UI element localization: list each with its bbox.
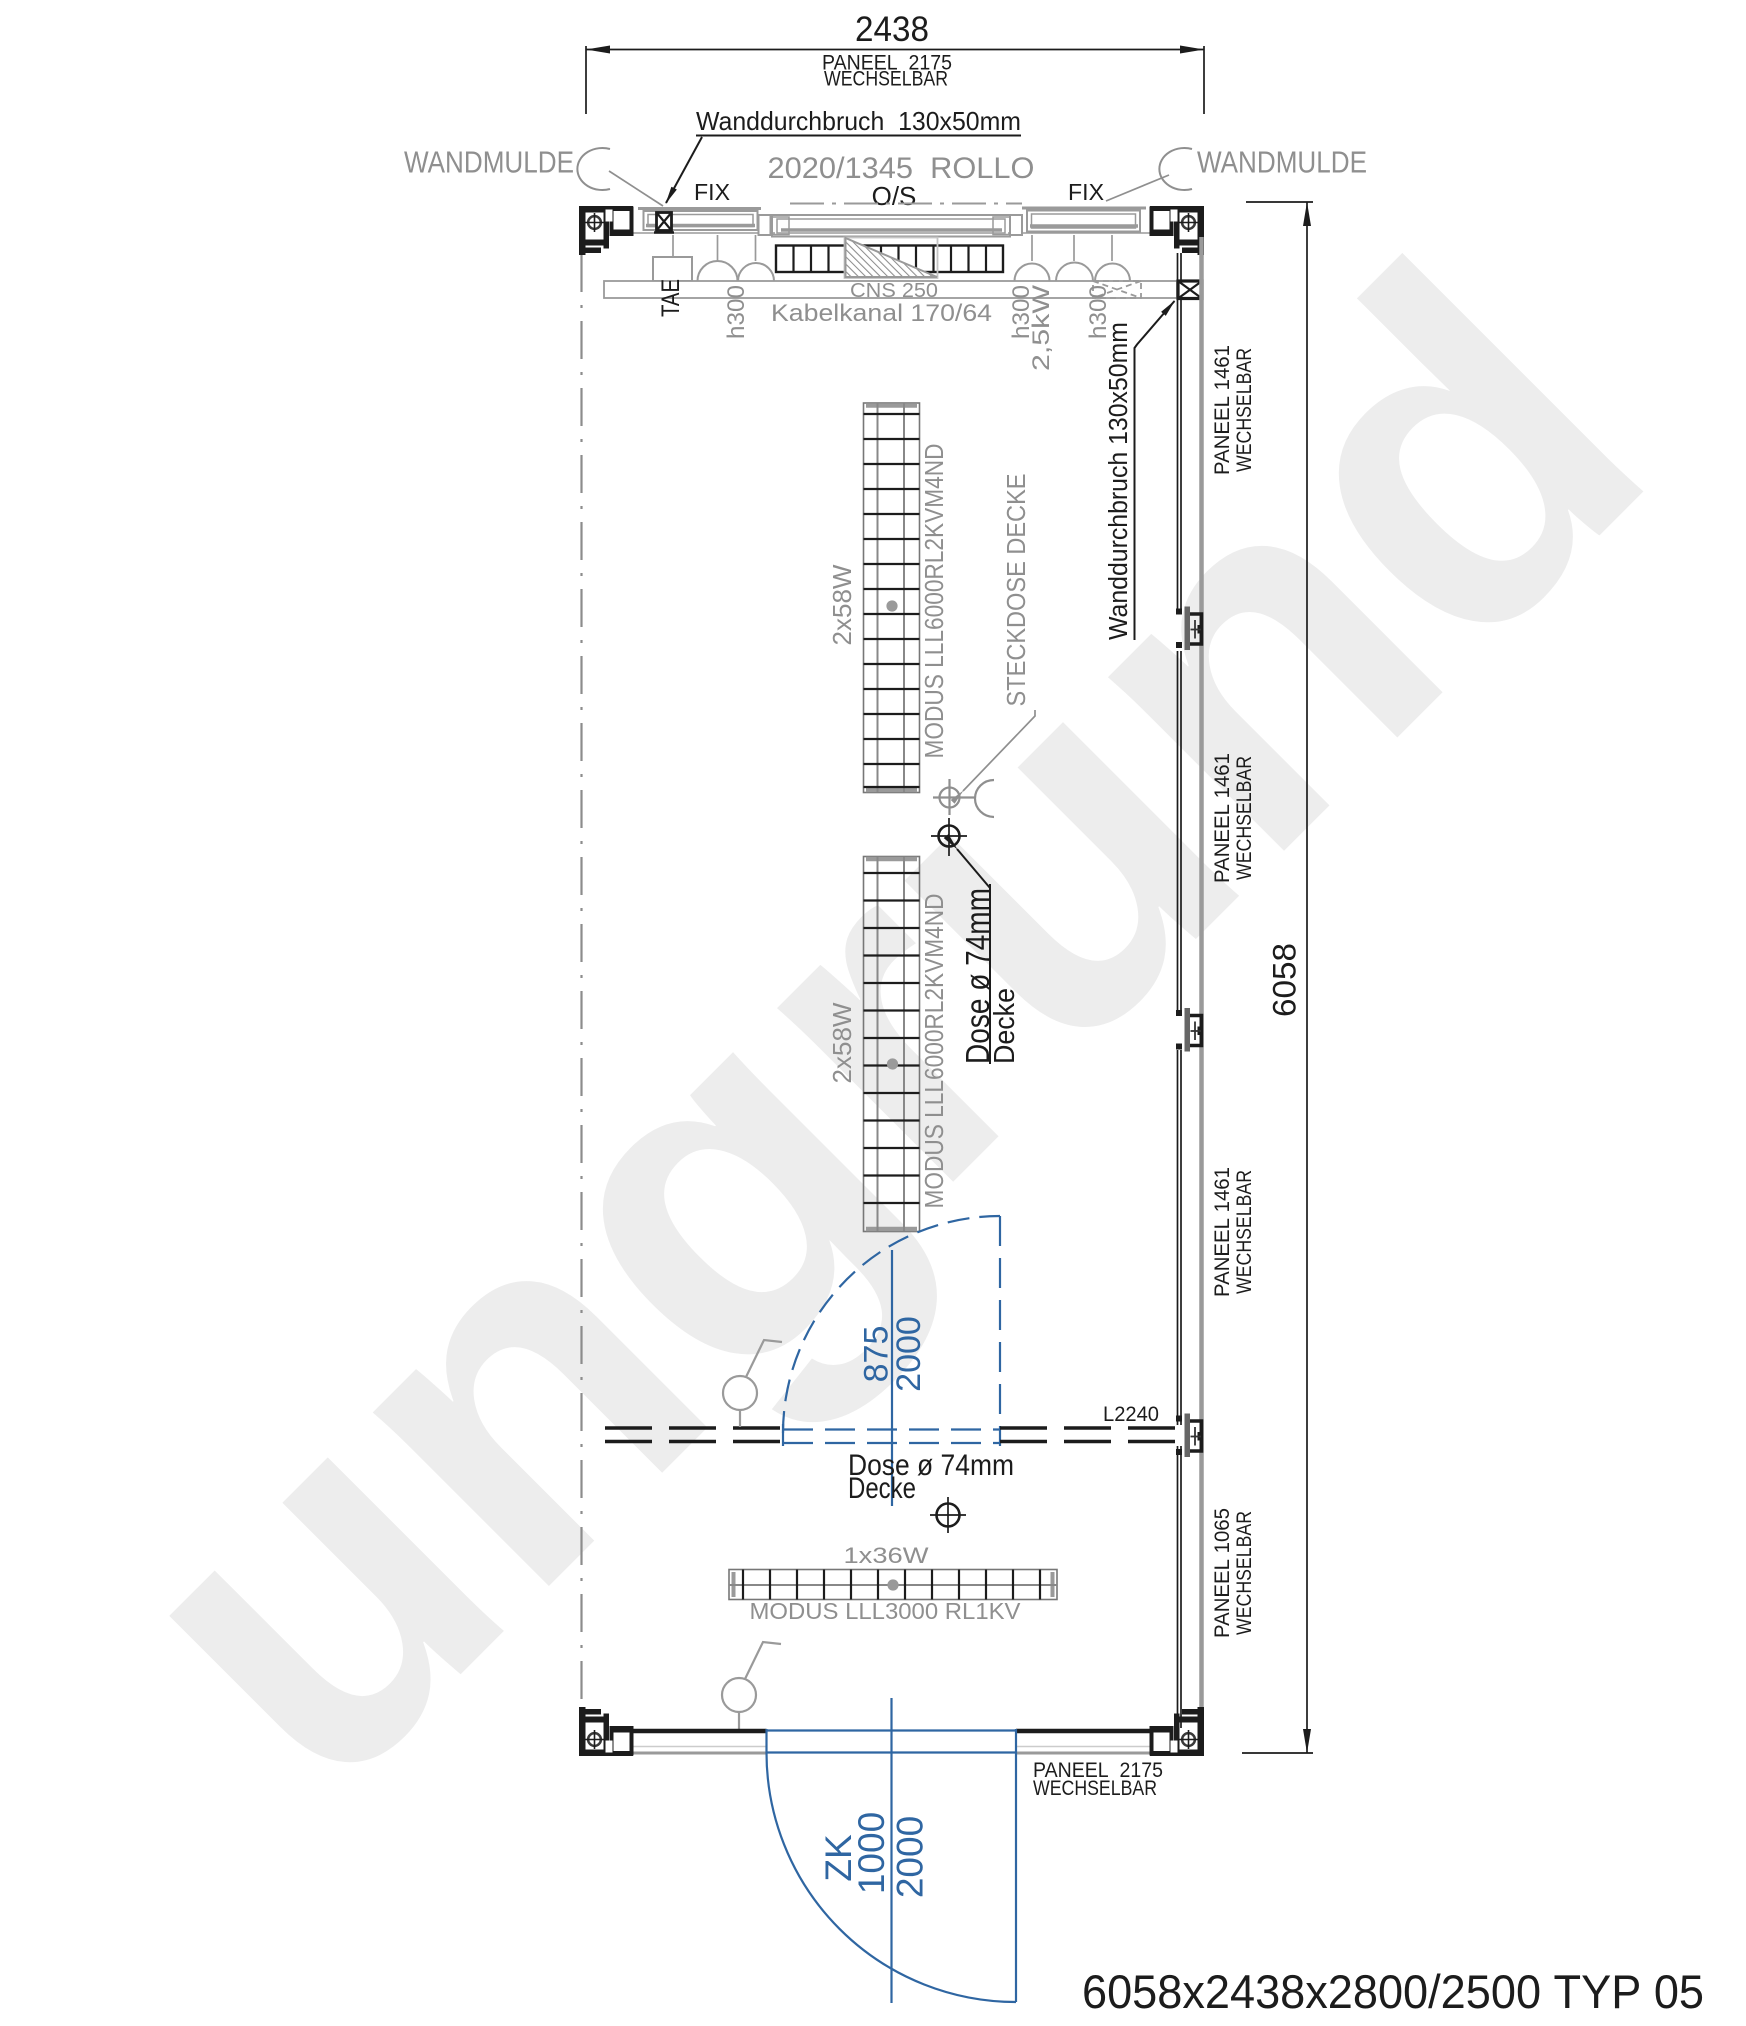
svg-text:PANEEL 1461: PANEEL 1461 <box>1210 753 1234 883</box>
svg-text:FIX: FIX <box>1068 179 1104 205</box>
svg-text:1000: 1000 <box>851 1812 892 1894</box>
svg-text:L2240: L2240 <box>1103 1403 1159 1426</box>
svg-text:FIX: FIX <box>694 179 730 205</box>
svg-text:Decke: Decke <box>989 988 1021 1064</box>
svg-text:h300: h300 <box>723 285 750 339</box>
svg-text:Wanddurchbruch 130x50mm: Wanddurchbruch 130x50mm <box>1105 322 1133 640</box>
svg-text:PANEEL 1461: PANEEL 1461 <box>1210 1167 1234 1297</box>
svg-text:1x36W: 1x36W <box>844 1543 929 1568</box>
svg-text:2438: 2438 <box>855 10 929 49</box>
svg-text:2x58W: 2x58W <box>827 1002 857 1083</box>
svg-text:WECHSELBAR: WECHSELBAR <box>1232 1170 1256 1294</box>
svg-text:WECHSELBAR: WECHSELBAR <box>1232 348 1256 472</box>
svg-text:WECHSELBAR: WECHSELBAR <box>1232 1511 1256 1635</box>
svg-text:2000: 2000 <box>890 1816 931 1898</box>
svg-text:WECHSELBAR: WECHSELBAR <box>1232 756 1256 880</box>
svg-text:Kabelkanal 170/64: Kabelkanal 170/64 <box>771 300 992 327</box>
svg-text:O/S: O/S <box>872 181 917 211</box>
svg-text:ungrund: ungrund <box>24 170 1737 1883</box>
svg-text:CNS 250: CNS 250 <box>850 280 938 302</box>
svg-text:PANEEL 1065: PANEEL 1065 <box>1210 1508 1234 1638</box>
svg-text:2x58W: 2x58W <box>827 564 857 645</box>
svg-text:PANEEL 1461: PANEEL 1461 <box>1210 345 1234 475</box>
svg-text:MODUS LLL6000RL2KVM4ND: MODUS LLL6000RL2KVM4ND <box>919 444 949 759</box>
svg-text:Wanddurchbruch 130x50mm: Wanddurchbruch 130x50mm <box>696 106 1021 136</box>
svg-text:MODUS LLL6000RL2KVM4ND: MODUS LLL6000RL2KVM4ND <box>919 894 949 1209</box>
svg-text:WECHSELBAR: WECHSELBAR <box>824 67 948 91</box>
svg-text:STECKDOSE DECKE: STECKDOSE DECKE <box>1001 474 1031 707</box>
svg-text:6058x2438x2800/2500 TYP 05: 6058x2438x2800/2500 TYP 05 <box>1082 1965 1704 2018</box>
svg-text:WANDMULDE: WANDMULDE <box>404 145 574 180</box>
svg-text:6058: 6058 <box>1267 943 1303 1017</box>
svg-text:WANDMULDE: WANDMULDE <box>1197 145 1367 180</box>
svg-text:2,5kW: 2,5kW <box>1028 285 1055 371</box>
svg-text:Decke: Decke <box>848 1472 916 1505</box>
svg-text:TAE: TAE <box>657 279 685 317</box>
svg-text:MODUS LLL3000 RL1KV: MODUS LLL3000 RL1KV <box>750 1598 1022 1624</box>
svg-text:WECHSELBAR: WECHSELBAR <box>1033 1776 1157 1800</box>
svg-text:2000: 2000 <box>890 1316 928 1392</box>
